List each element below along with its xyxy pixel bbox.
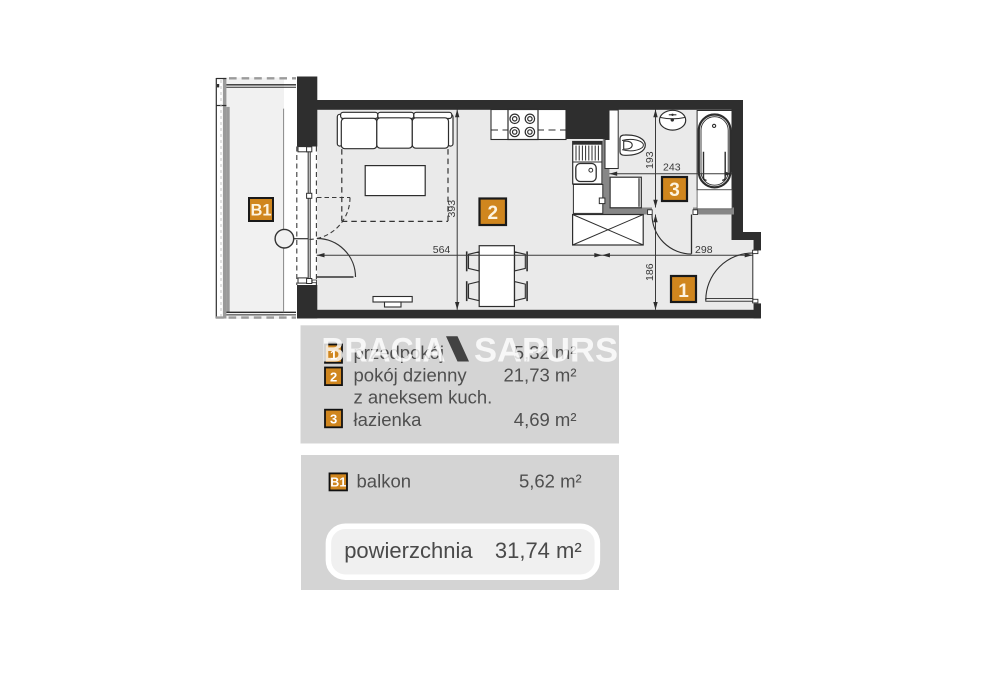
svg-text:31,74 m²: 31,74 m² xyxy=(495,538,582,563)
svg-text:1: 1 xyxy=(678,281,689,302)
svg-text:2: 2 xyxy=(488,203,499,224)
svg-text:łazienka: łazienka xyxy=(354,409,423,430)
svg-text:SAPURSCY: SAPURSCY xyxy=(474,332,666,370)
svg-text:4,69 m²: 4,69 m² xyxy=(514,409,577,430)
svg-text:186: 186 xyxy=(644,263,656,281)
svg-text:298: 298 xyxy=(695,244,713,256)
svg-text:powierzchnia: powierzchnia xyxy=(344,538,473,563)
svg-text:3: 3 xyxy=(330,412,337,427)
svg-text:564: 564 xyxy=(433,244,451,256)
svg-text:2: 2 xyxy=(330,369,337,384)
svg-text:393: 393 xyxy=(446,200,458,218)
svg-text:BRACIA: BRACIA xyxy=(322,332,446,370)
svg-text:5,62 m²: 5,62 m² xyxy=(519,471,582,492)
svg-text:243: 243 xyxy=(663,162,681,174)
svg-text:3: 3 xyxy=(669,180,680,201)
svg-text:B1: B1 xyxy=(330,476,346,490)
svg-text:B1: B1 xyxy=(250,202,271,220)
svg-text:193: 193 xyxy=(644,151,656,169)
svg-text:z aneksem kuch.: z aneksem kuch. xyxy=(354,387,493,408)
svg-text:balkon: balkon xyxy=(357,471,412,492)
